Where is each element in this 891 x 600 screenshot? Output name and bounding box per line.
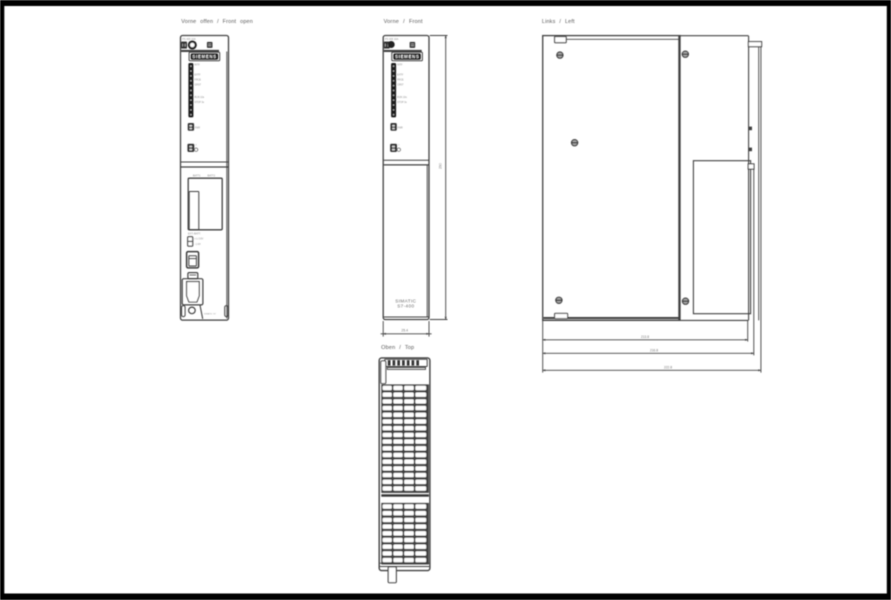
svg-text:INTF: INTF xyxy=(194,64,200,67)
svg-text:Vorne offen / Front open: Vorne offen / Front open xyxy=(181,19,253,25)
svg-text:CRST: CRST xyxy=(397,83,404,86)
svg-text:RUN 10s: RUN 10s xyxy=(397,96,408,99)
svg-text:FMR: FMR xyxy=(195,126,200,129)
svg-text:222.8: 222.8 xyxy=(664,365,672,369)
svg-text:Oben / Top: Oben / Top xyxy=(381,345,414,351)
svg-text:PS 405 10A: PS 405 10A xyxy=(182,38,196,41)
svg-text:EXTF: EXTF xyxy=(397,73,404,76)
svg-text:216.8: 216.8 xyxy=(650,348,658,352)
svg-text:S7-400: S7-400 xyxy=(397,304,414,309)
svg-text:290: 290 xyxy=(439,163,443,169)
svg-text:SIMATIC S7: SIMATIC S7 xyxy=(204,313,217,316)
svg-text:FRCE: FRCE xyxy=(397,78,404,81)
svg-text:INTF: INTF xyxy=(397,64,403,67)
svg-text:Vorne / Front: Vorne / Front xyxy=(384,19,423,25)
svg-text:STOP 3s: STOP 3s xyxy=(194,101,204,104)
svg-text:FRCE: FRCE xyxy=(194,78,201,81)
svg-text:BATT1: BATT1 xyxy=(193,174,201,177)
svg-text:SIEMENS: SIEMENS xyxy=(192,54,216,59)
svg-text:SIEMENS: SIEMENS xyxy=(395,54,419,59)
svg-text:213.8: 213.8 xyxy=(641,335,649,339)
svg-text:PS 405 10A: PS 405 10A xyxy=(385,38,399,41)
svg-text:STOP 3s: STOP 3s xyxy=(397,101,407,104)
svg-text:25.4: 25.4 xyxy=(401,329,408,333)
svg-text:- 1 AH: - 1 AH xyxy=(194,243,201,246)
svg-text:BATT2: BATT2 xyxy=(208,174,216,177)
svg-text:CRST: CRST xyxy=(194,83,201,86)
svg-text:+ Li 3.6V: + Li 3.6V xyxy=(194,239,204,241)
svg-text:Links / Left: Links / Left xyxy=(542,19,575,25)
svg-text:EXTF: EXTF xyxy=(194,73,201,76)
svg-text:RUN 10s: RUN 10s xyxy=(194,96,205,99)
svg-text:EXT.-BATT.: EXT.-BATT. xyxy=(188,233,201,236)
svg-text:FMR: FMR xyxy=(398,126,403,129)
